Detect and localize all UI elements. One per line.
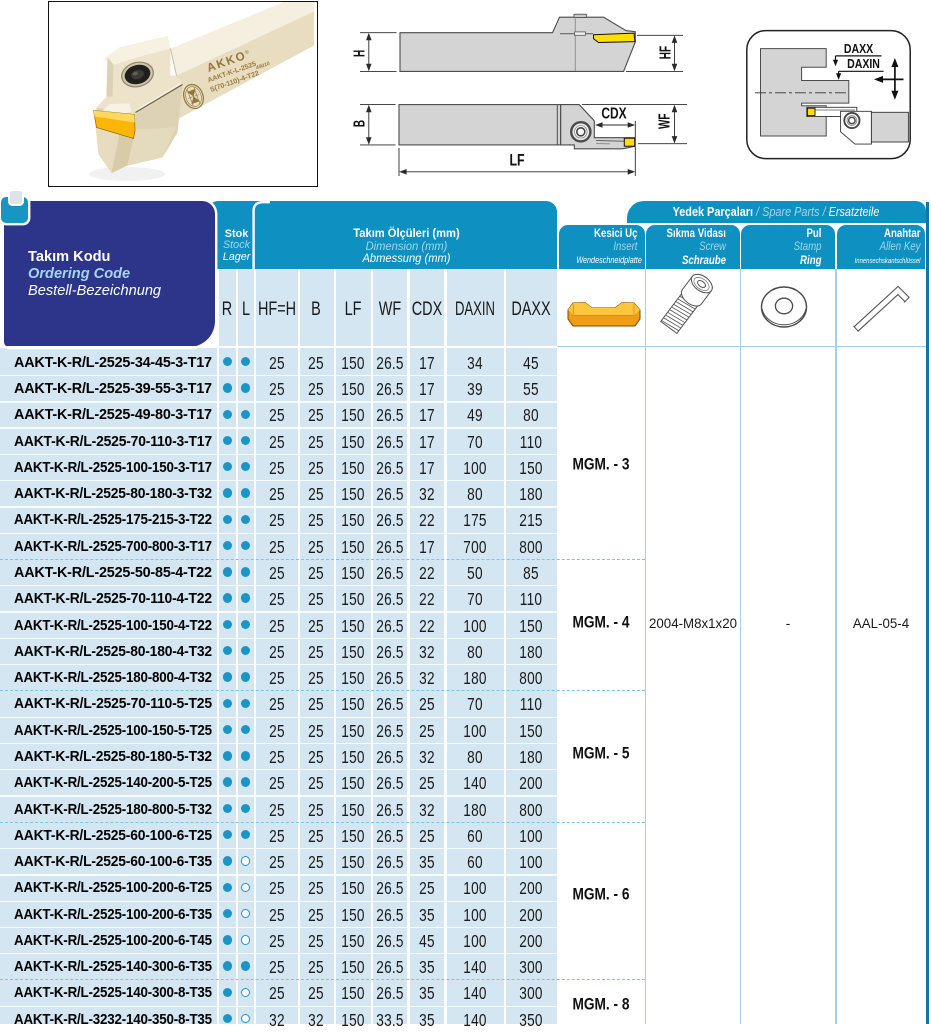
svg-text:WF: WF <box>655 114 673 129</box>
svg-text:H: H <box>350 50 368 57</box>
svg-text:HF: HF <box>656 46 674 59</box>
svg-text:CDX: CDX <box>601 104 627 122</box>
svg-text:LF: LF <box>509 152 524 170</box>
svg-text:B: B <box>350 120 368 127</box>
svg-text:DAXIN: DAXIN <box>847 56 880 71</box>
svg-text:DAXX: DAXX <box>844 41 873 56</box>
